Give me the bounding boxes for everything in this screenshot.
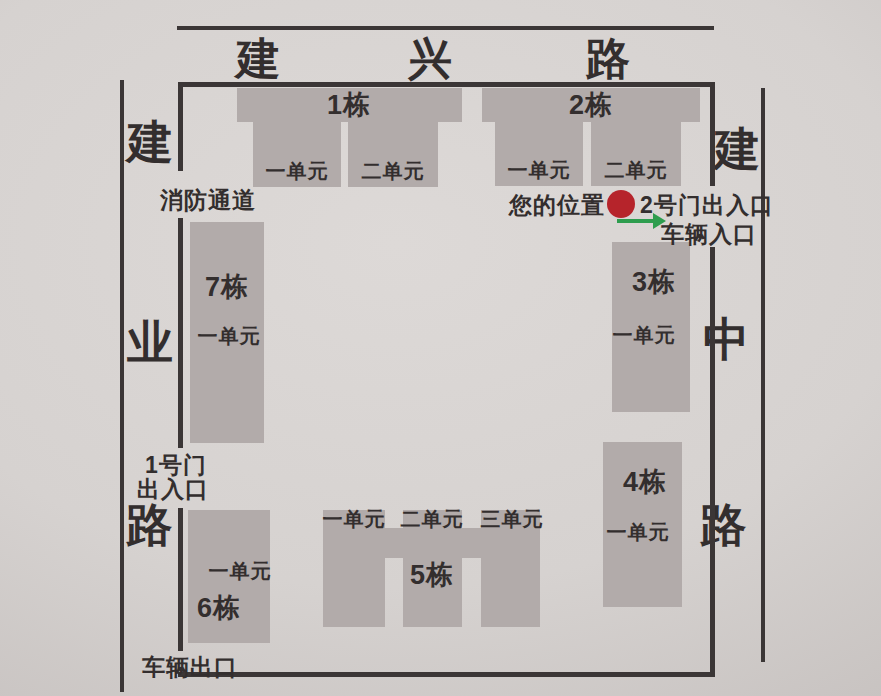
compound-wall-right-segment-2: [710, 247, 715, 672]
your-location-label: 您的位置: [509, 192, 605, 218]
vehicle-entrance-arrow-icon: [617, 219, 655, 223]
building-4-label: 4栋: [623, 467, 667, 498]
building-7-label: 7栋: [205, 272, 249, 303]
building-5-body: [323, 528, 540, 558]
jianzhong-road-edge-line: [761, 88, 765, 662]
building-3-unit-1-label: 一单元: [613, 324, 676, 347]
building-5-unit-2-label: 二单元: [401, 508, 464, 531]
road-jianxing-char-1: 建: [236, 34, 280, 85]
building-6-unit-1-label: 一单元: [209, 560, 272, 583]
road-jianzhong-char-3: 路: [700, 499, 746, 552]
building-3-label: 3栋: [632, 267, 676, 298]
building-1-unit-1-label: 一单元: [266, 160, 329, 183]
building-2-label: 2栋: [569, 90, 613, 121]
compound-wall-bottom: [178, 672, 715, 677]
road-jianye-char-1: 建: [127, 116, 173, 169]
gate1-label-line2: 出入口: [137, 476, 209, 502]
building-5-unit-3-label: 三单元: [481, 508, 544, 531]
gate1-label-line1: 1号门: [145, 452, 207, 478]
vehicle-entrance-label: 车辆入口: [661, 221, 757, 247]
building-2-unit-1-label: 一单元: [508, 159, 571, 182]
building-1-label: 1栋: [327, 90, 371, 121]
compound-site-map: 建 兴 路 建 业 路 建 中 路 1栋 一单元 二单元 2栋 一单元 二单元 …: [0, 0, 881, 696]
road-jianzhong-char-1: 建: [714, 123, 760, 176]
compound-wall-left-segment-2: [178, 218, 183, 448]
building-5-unit-1-label: 一单元: [323, 508, 386, 531]
building-5-label: 5栋: [410, 560, 454, 591]
building-7-unit-1-label: 一单元: [198, 325, 261, 348]
compound-wall-left-segment-3: [178, 508, 183, 651]
road-jianxing-char-2: 兴: [408, 34, 452, 85]
building-6-label: 6栋: [197, 593, 241, 624]
fire-lane-label: 消防通道: [160, 187, 256, 213]
building-2-unit-2-label: 二单元: [605, 159, 668, 182]
compound-wall-left-segment-1: [178, 82, 183, 171]
jianxing-road-edge-line: [177, 26, 714, 30]
jianye-road-edge-line: [120, 80, 124, 692]
road-jianye-char-3: 路: [126, 499, 172, 552]
vehicle-exit-label: 车辆出口: [142, 654, 238, 680]
road-jianxing-char-3: 路: [586, 34, 630, 85]
compound-wall-top: [181, 82, 715, 87]
road-jianye-char-2: 业: [127, 316, 173, 369]
building-4-unit-1-label: 一单元: [607, 521, 670, 544]
compound-wall-right-segment-1: [710, 82, 715, 186]
your-location-marker-icon: [607, 190, 635, 218]
building-1-unit-2-label: 二单元: [362, 160, 425, 183]
